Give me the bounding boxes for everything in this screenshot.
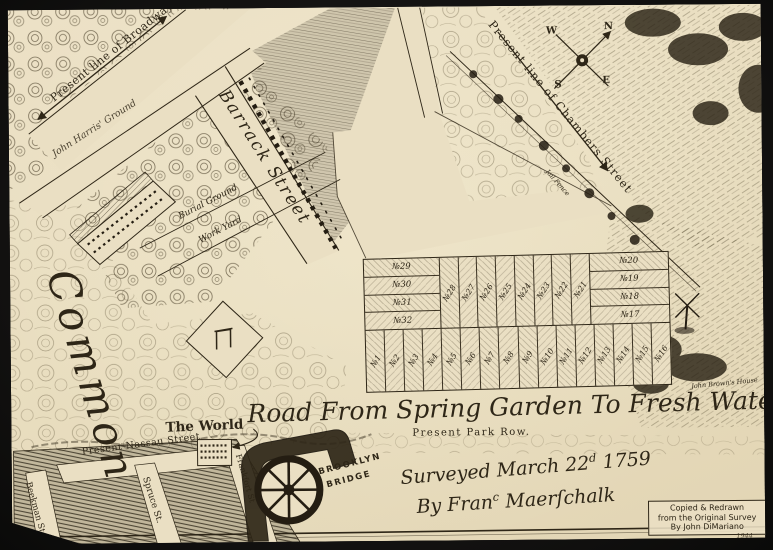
lot-cell: №22 [552, 254, 573, 324]
map-stage: №29№30№31№32 №28№27№26№25№24№23№22№21 №2… [0, 0, 773, 550]
compass-e-label: E [602, 76, 610, 86]
lot-cell: №25 [496, 256, 517, 326]
surveyed-date-year: 1759 [596, 448, 652, 474]
lot-cell: №30 [364, 276, 439, 296]
lot-cell: №18 [590, 287, 669, 307]
compass-s-label: S [554, 80, 561, 90]
lot-cell: №29 [364, 258, 439, 278]
lot-cell: №14 [613, 324, 634, 385]
lot-cell: №12 [575, 325, 596, 386]
park-row-label: Present Park Row. [391, 428, 551, 439]
lot-cell: №1 [366, 330, 387, 391]
lot-cell: №9 [518, 326, 539, 387]
lots-grid: №29№30№31№32 №28№27№26№25№24№23№22№21 №2… [363, 251, 672, 393]
lot-cell: №16 [651, 323, 671, 384]
lot-cell: №8 [499, 327, 520, 388]
photo-frame: №29№30№31№32 №28№27№26№25№24№23№22№21 №2… [0, 0, 773, 550]
surveyor-name-text: By Fran [416, 491, 494, 518]
lot-cell: №20 [589, 252, 668, 272]
lot-cell: №7 [480, 327, 501, 388]
the-world-label: The World [165, 419, 243, 436]
lot-cell: №26 [477, 256, 498, 326]
lots-bottom-band: №1№2№3№4№5№6№7№8№9№10№11№12№13№14№15№16 [366, 323, 671, 392]
lot-cell: №11 [556, 325, 577, 386]
compass-n-label: N [604, 22, 613, 32]
lot-cell: №4 [423, 329, 444, 390]
lot-cell: №19 [590, 270, 669, 290]
lot-cell: №10 [537, 326, 558, 387]
lot-cell: №5 [442, 328, 463, 389]
lot-cell: №24 [514, 255, 535, 325]
lot-cell: №13 [594, 324, 615, 385]
credit-year-label: 1944 [736, 533, 753, 540]
credit-line-3: By John DiMariano [650, 522, 764, 532]
lot-cell: №28 [439, 257, 460, 327]
credit-line-2: from the Original Survey [650, 512, 764, 522]
credit-box: Copied & Redrawn from the Original Surve… [648, 500, 766, 536]
map-paper: №29№30№31№32 №28№27№26№25№24№23№22№21 №2… [8, 4, 766, 545]
lot-cell: №21 [571, 254, 591, 324]
lot-cell: №32 [365, 311, 440, 330]
lot-cell: №27 [458, 257, 479, 327]
lots-left-block: №29№30№31№32 [364, 258, 442, 330]
lot-cell: №23 [533, 255, 554, 325]
lots-right-block: №20№19№18№17 [588, 252, 669, 324]
lot-cell: №31 [365, 293, 440, 313]
compass-w-label: W [546, 27, 557, 37]
lot-cell: №6 [461, 328, 482, 389]
lots-middle-block: №28№27№26№25№24№23№22№21 [439, 254, 590, 328]
lot-cell: №2 [385, 330, 406, 391]
lots-upper-band: №29№30№31№32 №28№27№26№25№24№23№22№21 №2… [364, 252, 670, 331]
lot-cell: №17 [591, 305, 670, 324]
lot-cell: №15 [632, 323, 653, 384]
lot-cell: №3 [404, 329, 425, 390]
